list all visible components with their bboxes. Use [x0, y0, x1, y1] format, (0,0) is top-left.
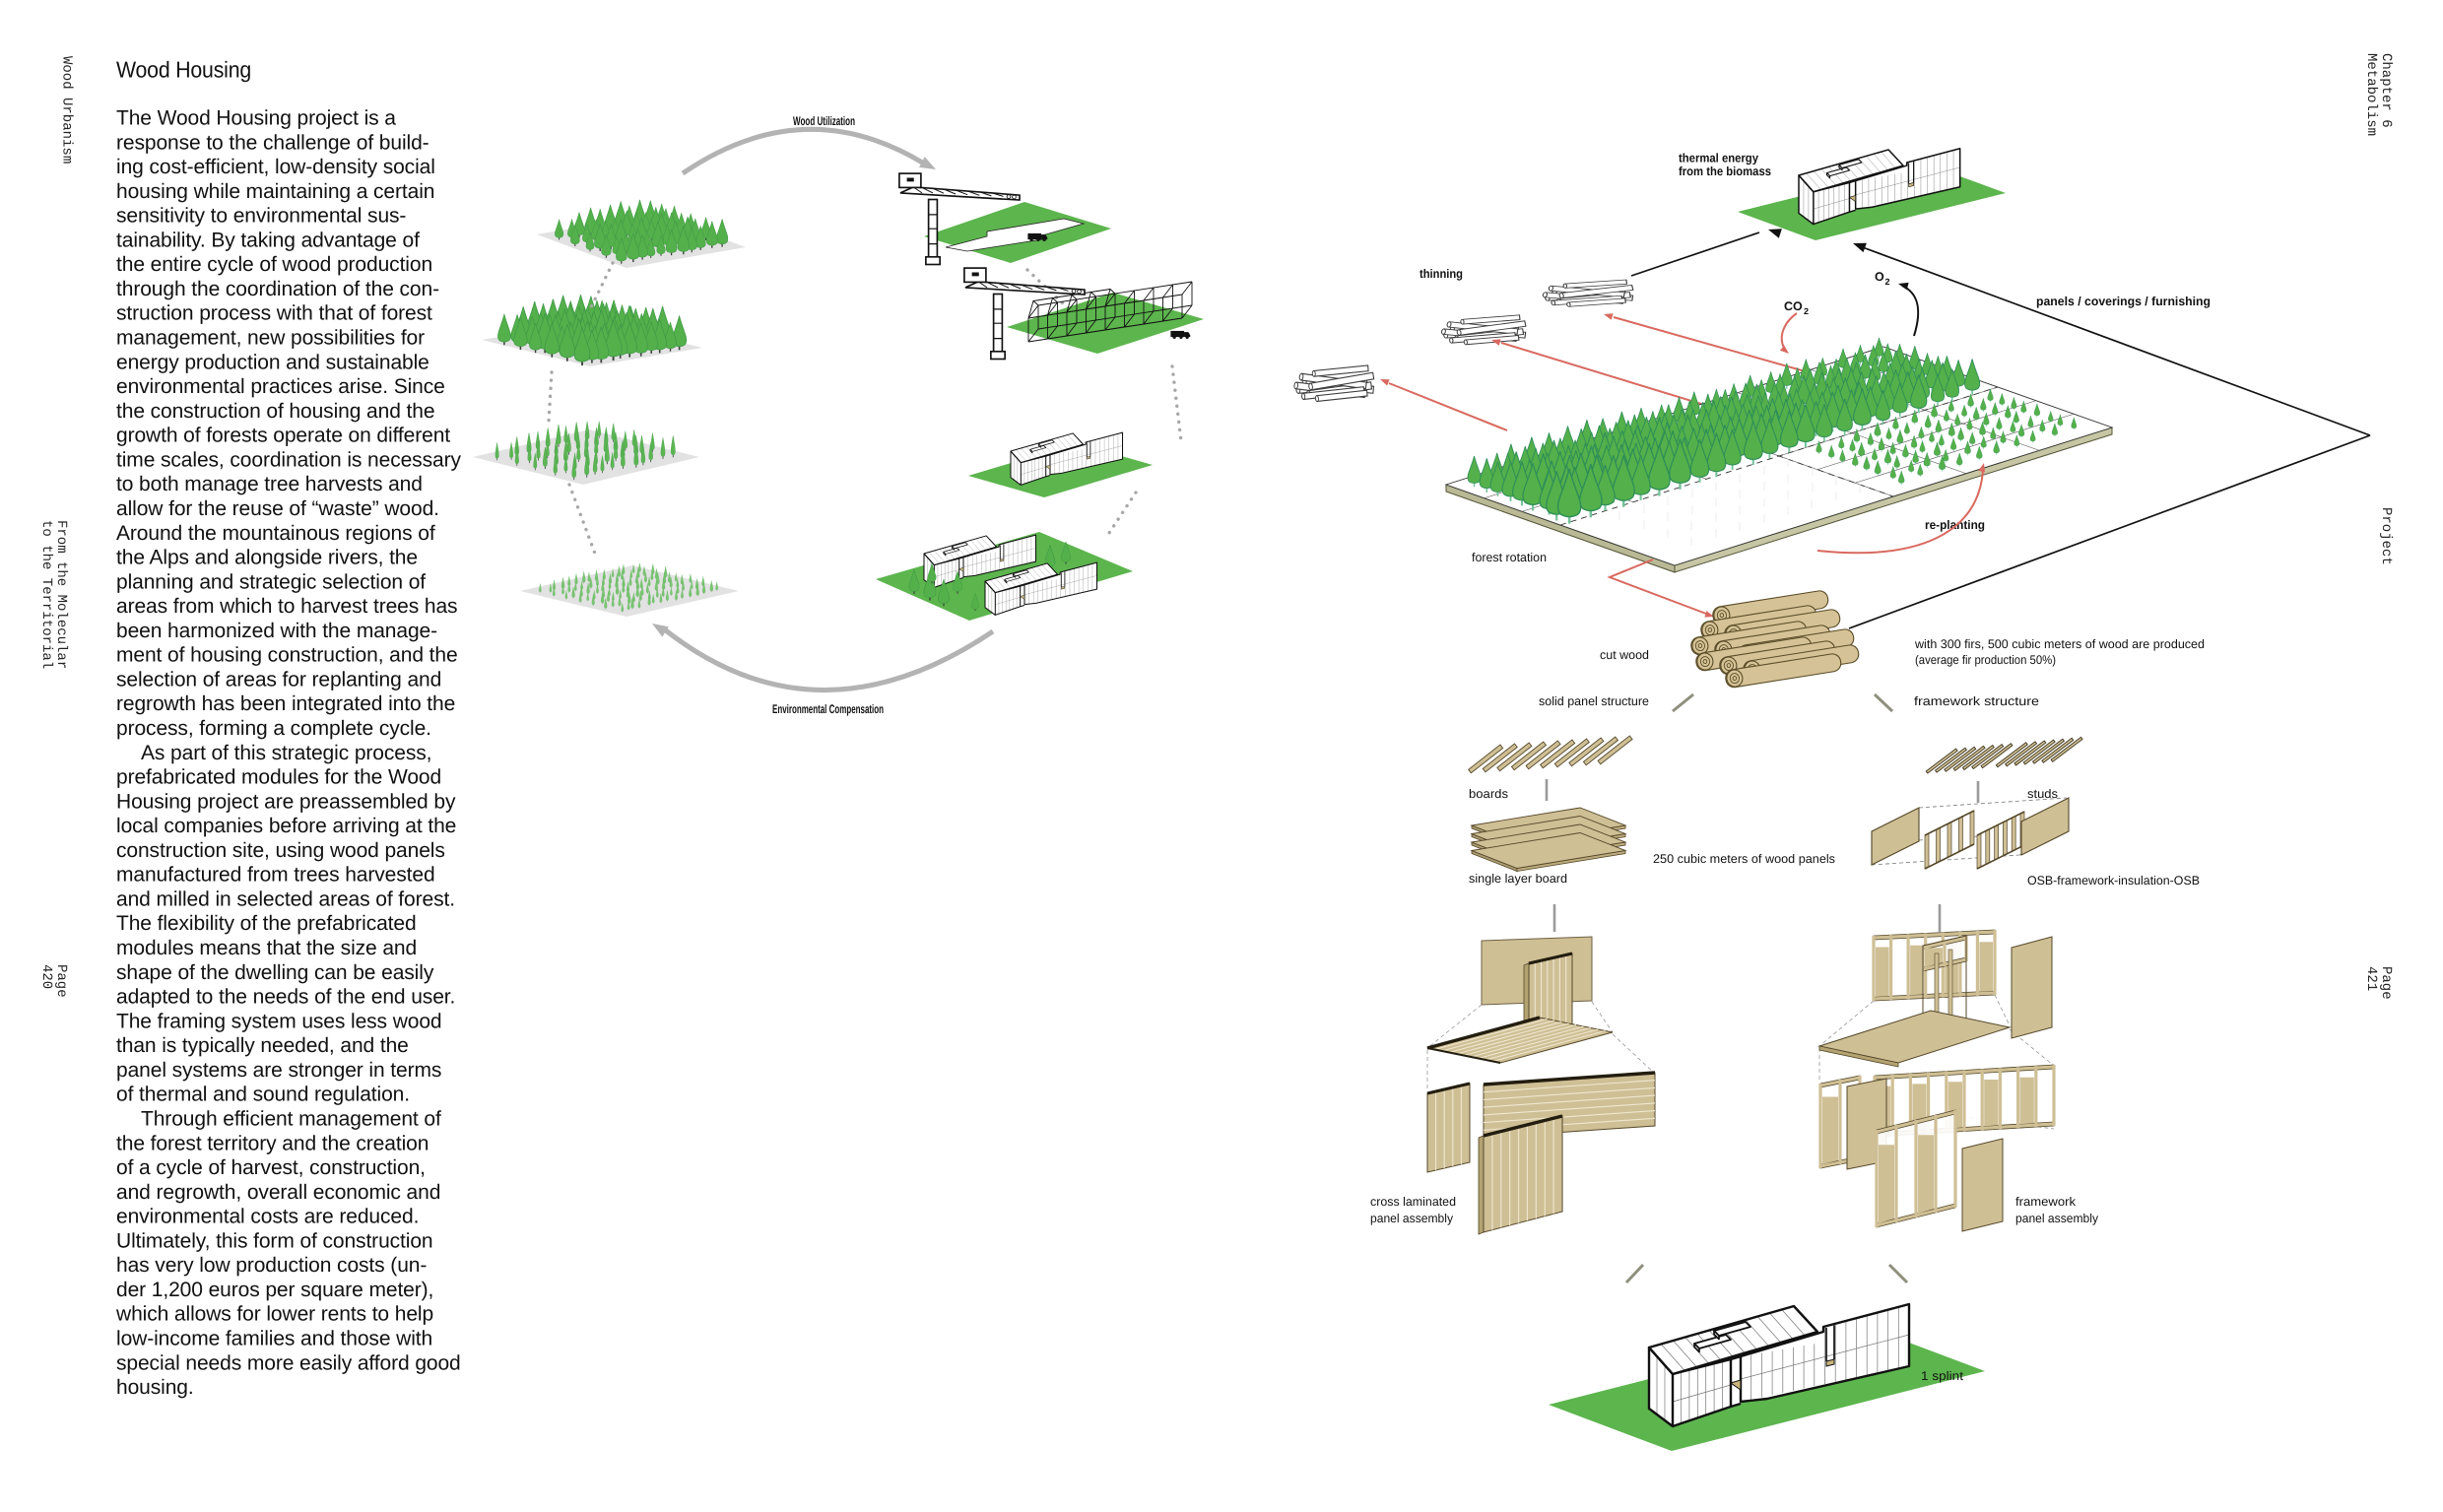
svg-text:Around the mountainous regions: Around the mountainous regions of [116, 522, 435, 545]
svg-text:construction site, using wood: construction site, using wood panels [116, 839, 445, 862]
svg-text:housing.: housing. [116, 1376, 194, 1399]
svg-text:Wood Housing: Wood Housing [116, 57, 251, 83]
svg-text:modules means that the size an: modules means that the size and [116, 937, 417, 959]
svg-text:boards: boards [1469, 787, 1508, 801]
svg-text:local companies before arrivin: local companies before arriving at the [116, 815, 456, 837]
svg-text:Ultimately, this form of const: Ultimately, this form of construction [116, 1229, 433, 1252]
svg-text:Environmental Compensation: Environmental Compensation [772, 702, 884, 716]
svg-text:2: 2 [1885, 277, 1890, 287]
svg-text:2: 2 [1804, 306, 1809, 316]
svg-text:struction process with that of: struction process with that of forest [116, 302, 432, 325]
svg-text:which allows for lower rents t: which allows for lower rents to help [115, 1303, 433, 1326]
svg-text:Wood Utilization: Wood Utilization [793, 114, 855, 128]
svg-text:areas from which to harvest tr: areas from which to harvest trees has [116, 595, 457, 618]
svg-text:with 300 firs, 500 cubic meter: with 300 firs, 500 cubic meters of wood … [1914, 637, 2205, 651]
svg-text:panels / coverings / furnishin: panels / coverings / furnishing [2036, 295, 2211, 308]
svg-text:to the Territorial: to the Territorial [38, 520, 54, 669]
svg-text:low-income families and those: low-income families and those with [116, 1328, 432, 1350]
svg-text:growth of forests operate on d: growth of forests operate on different [116, 425, 450, 447]
svg-text:CO: CO [1784, 299, 1803, 313]
svg-text:Page: Page [2378, 966, 2394, 1000]
svg-text:of a cycle of harvest, constru: of a cycle of harvest, construction, [116, 1156, 426, 1179]
svg-text:Chapter 6: Chapter 6 [2378, 53, 2394, 128]
svg-text:From the Molecular: From the Molecular [53, 520, 69, 669]
svg-text:OSB-framework-insulation-OSB: OSB-framework-insulation-OSB [2027, 874, 2200, 887]
svg-text:prefabricated modules for the: prefabricated modules for the Wood [116, 766, 441, 789]
svg-text:framework: framework [2015, 1195, 2077, 1209]
svg-text:allow for the reuse of “waste”: allow for the reuse of “waste” wood. [116, 497, 439, 520]
svg-text:manufactured from trees harves: manufactured from trees harvested [116, 864, 435, 887]
svg-text:250 cubic meters of wood panel: 250 cubic meters of wood panels [1653, 852, 1835, 866]
svg-text:housing while maintaining a ce: housing while maintaining a certain [116, 180, 434, 203]
svg-text:forest rotation: forest rotation [1472, 551, 1547, 564]
svg-text:re-planting: re-planting [1925, 518, 1985, 532]
svg-text:process, forming a complete cy: process, forming a complete cycle. [116, 717, 431, 740]
svg-text:planning and strategic selecti: planning and strategic selection of [116, 570, 426, 593]
svg-text:420: 420 [38, 964, 54, 989]
svg-text:(average fir production 50%): (average fir production 50%) [1915, 653, 2056, 667]
svg-text:Metabolism: Metabolism [2363, 53, 2379, 136]
svg-text:thermal energy: thermal energy [1679, 152, 1758, 165]
svg-text:from the biomass: from the biomass [1679, 164, 1771, 178]
svg-text:and milled in selected areas o: and milled in selected areas of forest. [116, 888, 455, 911]
svg-text:has very low production costs: has very low production costs (un- [116, 1254, 427, 1277]
svg-text:the entire cycle of wood produ: the entire cycle of wood production [116, 253, 432, 276]
svg-text:O: O [1875, 270, 1884, 284]
svg-text:shape of the dwelling can be e: shape of the dwelling can be easily [116, 961, 434, 984]
svg-text:tainability. By taking advanta: tainability. By taking advantage of [116, 229, 420, 251]
svg-text:ment of housing construction,: ment of housing construction, and the [116, 644, 458, 667]
svg-text:special needs more easily affo: special needs more easily afford good [116, 1351, 461, 1374]
svg-text:management, new possibilities: management, new possibilities for [116, 327, 425, 350]
svg-text:Housing project are preassembl: Housing project are preassembled by [116, 790, 456, 813]
svg-text:Page: Page [53, 964, 69, 998]
svg-text:energy production and sustaina: energy production and sustainable [116, 351, 429, 373]
svg-text:Wood Urbanism: Wood Urbanism [59, 56, 75, 164]
svg-text:sensitivity to environmental s: sensitivity to environmental sus- [116, 205, 406, 228]
svg-text:Through efficient management o: Through efficient management of [141, 1108, 441, 1131]
svg-text:single layer board: single layer board [1469, 872, 1567, 886]
svg-text:The framing system uses less w: The framing system uses less wood [116, 1010, 442, 1032]
svg-text:panel assembly: panel assembly [2015, 1212, 2099, 1225]
svg-text:der 1,200 euros per square met: der 1,200 euros per square meter), [116, 1279, 433, 1301]
svg-text:The Wood Housing project is a: The Wood Housing project is a [116, 107, 396, 130]
svg-text:through the coordination of th: through the coordination of the con- [116, 278, 439, 300]
svg-text:than is typically needed, and: than is typically needed, and the [116, 1034, 409, 1057]
svg-text:environmental costs are reduce: environmental costs are reduced. [116, 1206, 419, 1228]
svg-text:thinning: thinning [1420, 267, 1463, 281]
svg-text:to both manage tree harvests a: to both manage tree harvests and [116, 473, 423, 495]
svg-text:the forest territory and the c: the forest territory and the creation [116, 1132, 429, 1154]
svg-text:the Alps and alongside rivers,: the Alps and alongside rivers, the [116, 547, 418, 569]
svg-text:cut wood: cut wood [1600, 648, 1649, 662]
svg-text:As part of this strategic proc: As part of this strategic process, [141, 742, 431, 764]
svg-text:of thermal and sound regulatio: of thermal and sound regulation. [116, 1084, 410, 1106]
svg-text:solid panel structure: solid panel structure [1539, 694, 1649, 708]
svg-text:1 splint: 1 splint [1921, 1369, 1964, 1383]
svg-text:421: 421 [2363, 966, 2379, 991]
svg-text:been harmonized with the manag: been harmonized with the manage- [116, 620, 437, 642]
svg-text:regrowth has been integrated i: regrowth has been integrated into the [116, 692, 455, 715]
svg-text:the construction of housing an: the construction of housing and the [116, 400, 434, 423]
svg-text:ing cost-efficient, low-densit: ing cost-efficient, low-density social [116, 156, 435, 178]
svg-text:panel systems are stronger in: panel systems are stronger in terms [116, 1059, 441, 1082]
svg-text:time scales, coordination is n: time scales, coordination is necessary [116, 448, 461, 471]
svg-text:selection of areas for replant: selection of areas for replanting and [116, 668, 441, 690]
svg-text:adapted to the needs of the en: adapted to the needs of the end user. [116, 986, 455, 1009]
svg-text:panel assembly: panel assembly [1370, 1212, 1454, 1225]
svg-text:environmental practices arise.: environmental practices arise. Since [116, 375, 445, 398]
svg-text:The flexibility of the prefabr: The flexibility of the prefabricated [116, 912, 417, 935]
svg-text:Project: Project [2378, 507, 2394, 565]
svg-text:response to the challenge of b: response to the challenge of build- [116, 131, 429, 154]
svg-text:framework structure: framework structure [1914, 694, 2039, 708]
svg-text:and regrowth, overall economic: and regrowth, overall economic and [116, 1181, 440, 1204]
svg-text:cross laminated: cross laminated [1370, 1195, 1456, 1209]
